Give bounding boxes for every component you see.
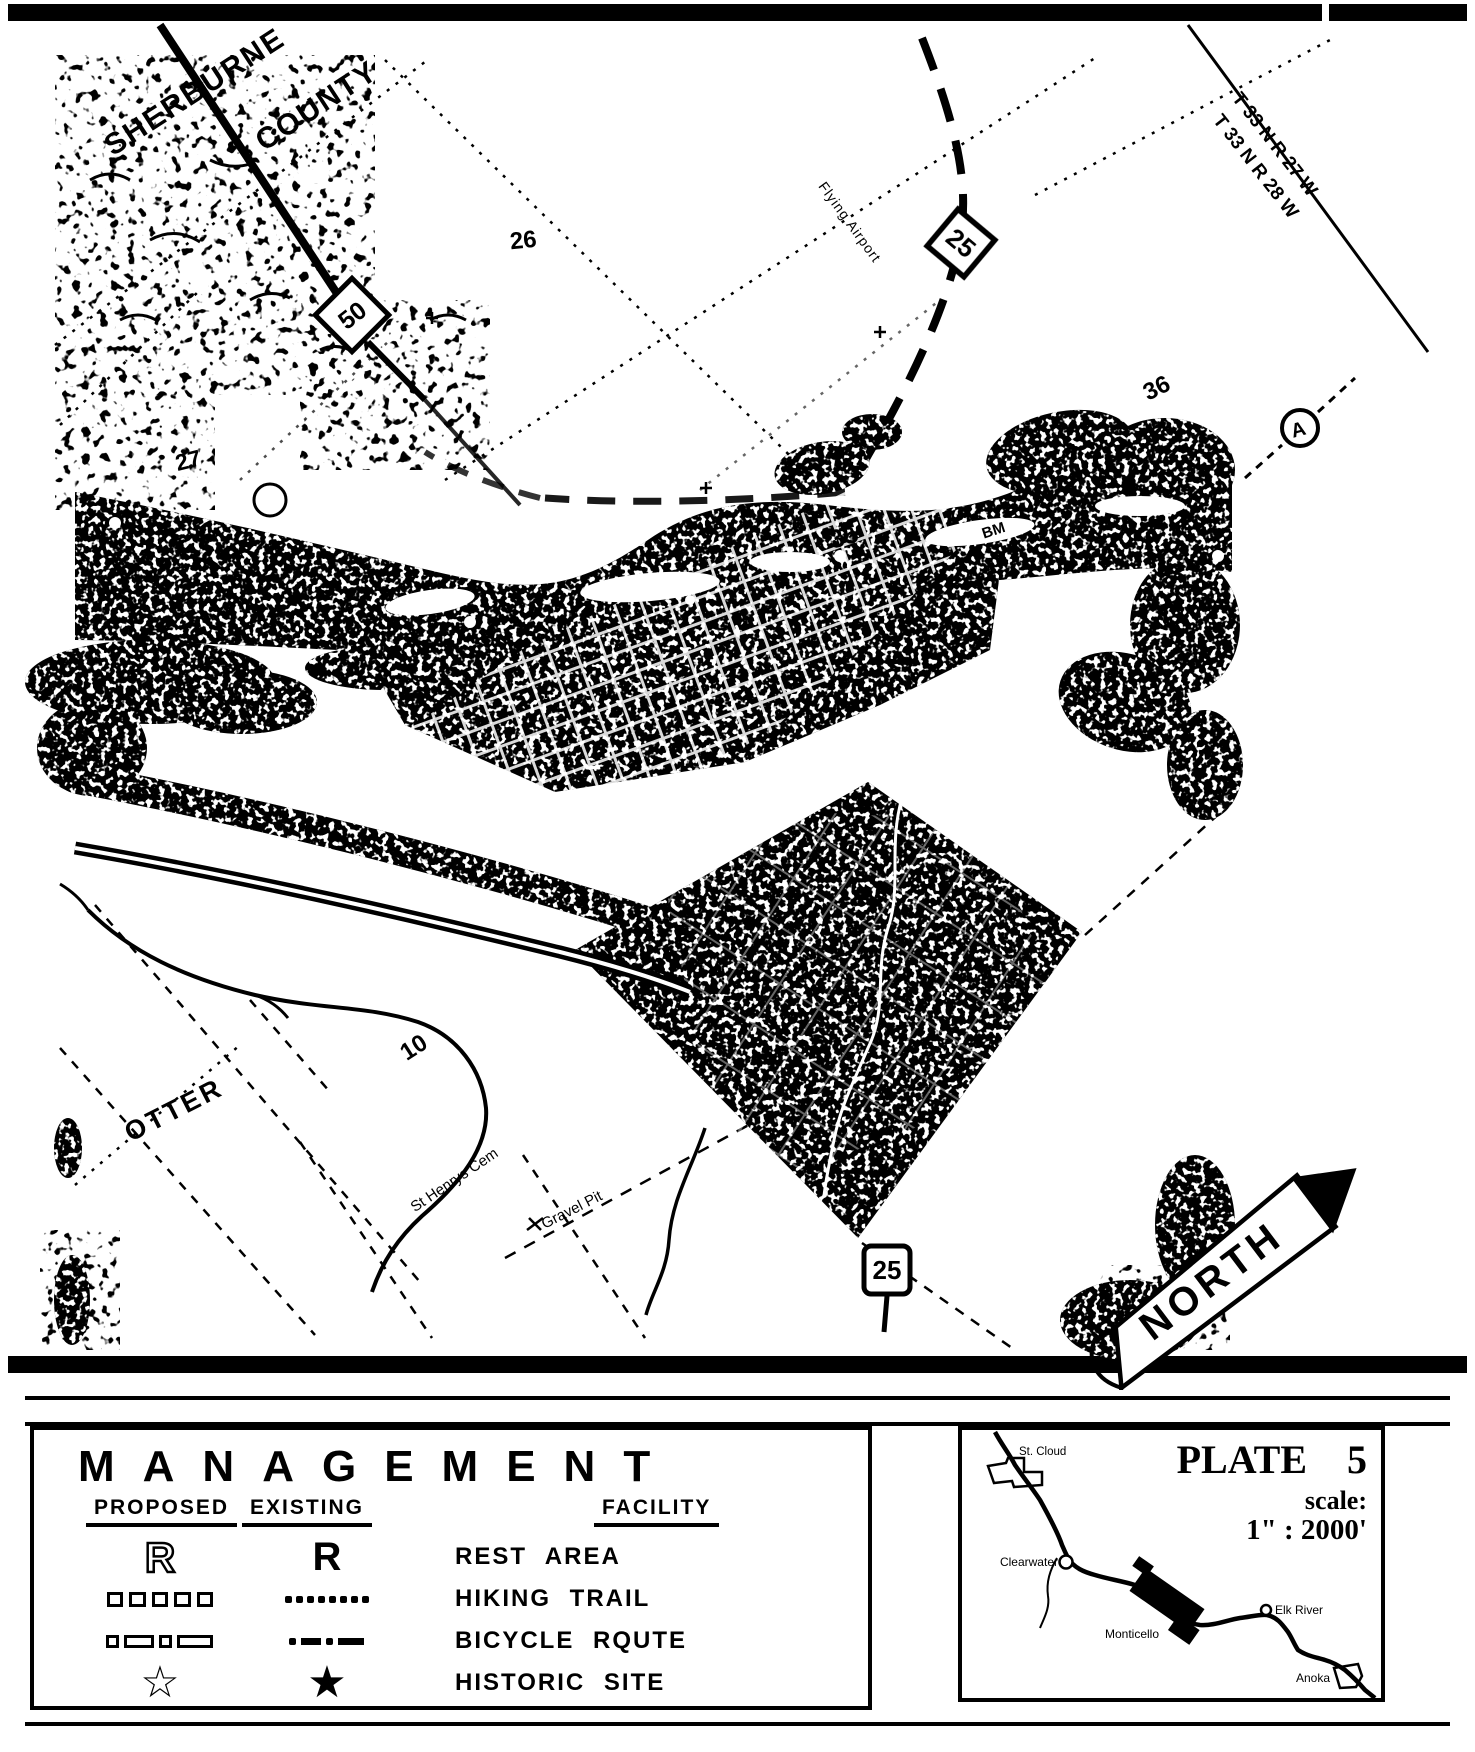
outlined-r-icon: R — [138, 1535, 182, 1579]
city-label-monticello: Monticello — [1105, 1627, 1159, 1641]
highway-25-shield-bottom: 25 — [864, 1246, 910, 1332]
top-border-bar — [8, 4, 1467, 21]
existing-rest-area-symbol: R — [271, 1536, 383, 1578]
open-star-icon: ☆ — [140, 1662, 179, 1704]
otter-creek-label: OTTER — [120, 1072, 229, 1147]
legend-row-historic-site: ☆ ★ HISTORIC SITE — [34, 1662, 868, 1704]
map-bottom-border-bar — [8, 1356, 1467, 1373]
solid-r-icon: R — [313, 1537, 342, 1577]
highway-25-shield-top: 25 — [927, 209, 995, 277]
otter-creek — [60, 884, 486, 1292]
scanned-map-plate: SHERBURNE COUNTY T 33 N R 27 W T 33 N R … — [0, 0, 1475, 1752]
plate-inset-panel: St. Cloud Clearwater Monticello Elk Rive… — [958, 1426, 1385, 1702]
legend-headers: PROPOSED EXISTING FACILITY — [34, 1496, 868, 1536]
section-number-36: 36 — [1139, 370, 1175, 406]
city-label-elk-river: Elk River — [1275, 1603, 1323, 1617]
airport-circle-marker: A — [1245, 378, 1355, 478]
anoka-outline — [1334, 1664, 1362, 1688]
existing-historic-site-symbol: ★ — [271, 1662, 383, 1704]
legend-col-existing: EXISTING — [242, 1496, 372, 1527]
airport-label: Flying Airport — [815, 179, 884, 266]
divider-rule-upper — [25, 1396, 1450, 1400]
legend-title: MANAGEMENT — [78, 1442, 868, 1492]
city-label-clearwater: Clearwater — [1000, 1555, 1058, 1569]
solid-star-icon: ★ — [307, 1662, 346, 1704]
elk-river-marker — [1261, 1605, 1271, 1615]
scale-label: scale: — [1305, 1486, 1367, 1516]
city-label-anoka: Anoka — [1296, 1671, 1330, 1685]
highway-25-bottom-number: 25 — [873, 1255, 902, 1285]
proposed-rest-area-symbol: R — [104, 1536, 216, 1578]
legend-col-facility: FACILITY — [594, 1496, 719, 1527]
stream-continuation — [646, 1128, 705, 1315]
legend-row-rest-area: R R REST AREA — [34, 1536, 868, 1578]
proposed-bicycle-route-symbol — [104, 1620, 216, 1662]
city-label-st-cloud: St. Cloud — [1019, 1446, 1066, 1458]
legend-row-bicycle-route: BICYCLE RQUTE — [34, 1620, 868, 1662]
facility-label: REST AREA — [455, 1536, 621, 1578]
plate-title: PLATE 5 — [1177, 1436, 1367, 1483]
cemetery-label: St Henrys Cem — [408, 1145, 502, 1216]
divider-rule-bottom — [25, 1722, 1450, 1726]
legend-row-hiking-trail: HIKING TRAIL — [34, 1578, 868, 1620]
gravel-pit-icon — [527, 1218, 543, 1230]
section-number-10: 10 — [395, 1029, 432, 1066]
topo-map: SHERBURNE COUNTY T 33 N R 27 W T 33 N R … — [0, 0, 1475, 1390]
management-legend-panel: MANAGEMENT PROPOSED EXISTING FACILITY R … — [30, 1426, 872, 1710]
facility-label: HIKING TRAIL — [455, 1578, 650, 1620]
gravel-pit-label: Gravel Pit — [539, 1187, 606, 1232]
scale-value: 1" : 2000' — [1246, 1514, 1367, 1547]
section-number-26: 26 — [509, 226, 538, 256]
facility-label: HISTORIC SITE — [455, 1662, 665, 1704]
clearwater-marker — [1060, 1556, 1073, 1569]
proposed-historic-site-symbol: ☆ — [104, 1662, 216, 1704]
facility-label: BICYCLE RQUTE — [455, 1620, 687, 1662]
existing-hiking-trail-symbol — [271, 1578, 383, 1620]
proposed-hiking-trail-symbol — [104, 1578, 216, 1620]
legend-col-proposed: PROPOSED — [86, 1496, 237, 1527]
existing-bicycle-route-symbol — [271, 1620, 383, 1662]
svg-text:R: R — [145, 1535, 175, 1579]
